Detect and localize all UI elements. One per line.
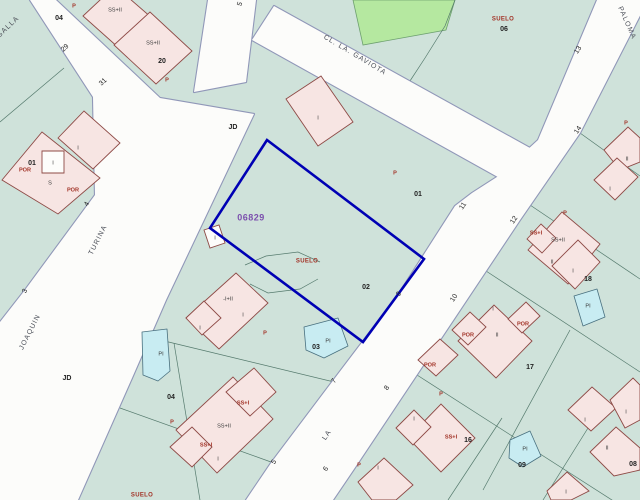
construction-code-red-label: SS+I [237,400,250,406]
suelo-label: SUELO [131,493,153,499]
construction-code-red-label: POR [424,362,436,368]
construction-code-red-label: P [624,120,628,126]
construction-code-label: SS+II [551,237,565,243]
parcel-number-label: 20 [158,58,166,65]
construction-code-red-label: P [439,391,443,397]
parcel-number-label: 06 [500,26,508,33]
swimming-pool [142,329,170,381]
parcel-number-label: 01 [414,191,422,198]
construction-code-red-label: SS+I [530,230,543,236]
map-canvas[interactable]: SS+IISS+IIP0420PGALLA2931501PORIISPORTUR… [0,0,640,500]
construction-code-label: SS+II [217,423,231,429]
construction-code-red-label: SS+I [445,434,458,440]
construction-code-red-label: SS+I [200,442,213,448]
parcel-number-label: 16 [464,437,472,444]
selected-block-label: 06829 [237,212,265,222]
construction-code-red-label: P [72,3,76,9]
parcel-number-label: 04 [55,15,63,22]
construction-code-red-label: P [563,210,567,216]
construction-code-label: PI [158,351,164,357]
suelo-label: SUELO [296,259,318,265]
parcel-number-label: 09 [518,462,526,469]
parcel-number-label: 17 [526,364,534,371]
parcel-number-label: 02 [362,284,370,291]
suelo-label: SUELO [492,17,514,23]
construction-code-label: PI [522,446,528,452]
construction-code-label: II [605,445,609,451]
construction-code-label: PI [585,303,591,309]
construction-code-label: SS+II [146,40,160,46]
construction-code-red-label: POR [19,167,31,173]
construction-code-red-label: P [393,170,397,176]
construction-code-red-label: POR [462,332,474,338]
cadastral-map-viewport[interactable]: SS+IISS+IIP0420PGALLA2931501PORIISPORTUR… [0,0,640,500]
construction-code-label: SS+II [108,7,122,13]
construction-code-label: II [495,332,499,338]
parcel-number-label: 01 [28,160,36,167]
construction-code-red-label: POR [67,187,79,193]
construction-code-red-label: P [165,77,169,83]
construction-code-label: PI [325,338,331,344]
construction-code-red-label: P [170,419,174,425]
construction-code-label: II [550,259,554,265]
parcel-number-label: 18 [584,276,592,283]
construction-code-red-label: POR [517,321,529,327]
construction-code-red-label: P [357,462,361,468]
construction-code-label: S [48,180,52,186]
parcel-number-label: 04 [167,394,175,401]
construction-code-label: -I+II [223,296,233,302]
parcel-number-label: JD [229,124,238,131]
parcel-number-label: 03 [312,344,320,351]
construction-code-red-label: P [263,330,267,336]
construction-code-label: II [625,156,629,162]
parcel-number-label: JD [63,375,72,382]
parcel-number-label: 08 [629,461,637,468]
